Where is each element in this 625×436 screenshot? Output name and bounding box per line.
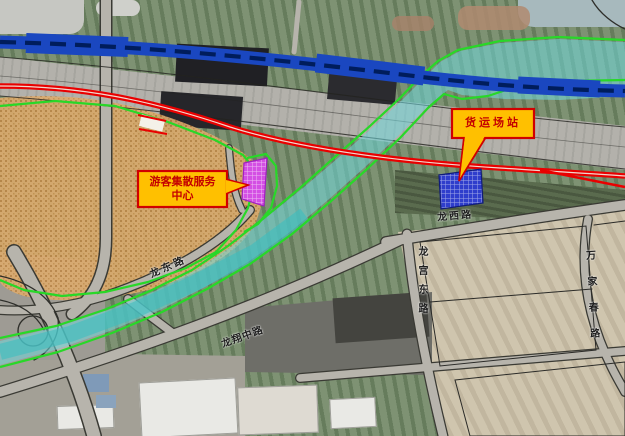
planning-map: 龙东路 龙西路 龙宫东路 万家春路 龙翔中路 游客集散服务 中心 货运场站 bbox=[0, 0, 625, 436]
freight-station-callout-text: 货运场站 bbox=[452, 109, 534, 138]
overlay-linework bbox=[0, 0, 625, 436]
tourist-center-line2: 中心 bbox=[172, 189, 194, 203]
road-label-longgong-east: 龙宫东路 bbox=[414, 246, 429, 322]
road-label-longxi: 龙西路 bbox=[436, 205, 473, 223]
tourist-center-callout-text: 游客集散服务 中心 bbox=[138, 171, 227, 207]
tourist-center-site bbox=[242, 158, 267, 206]
freight-station-label: 货运场站 bbox=[465, 116, 521, 130]
tourist-center-line1: 游客集散服务 bbox=[150, 175, 216, 189]
